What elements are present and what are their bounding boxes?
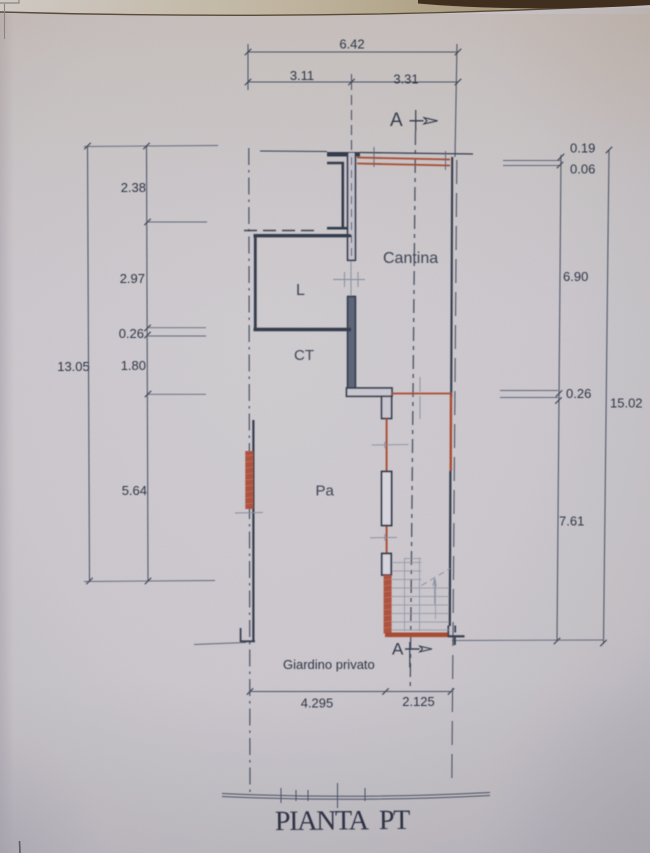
svg-text:6.42: 6.42: [339, 37, 364, 52]
svg-text:Pa: Pa: [316, 483, 335, 500]
svg-text:Giardino privato: Giardino privato: [283, 657, 375, 672]
svg-text:1.80: 1.80: [121, 358, 146, 373]
svg-text:CT: CT: [294, 347, 314, 364]
svg-text:2.38: 2.38: [121, 180, 146, 195]
svg-text:Cantina: Cantina: [383, 250, 438, 267]
svg-text:2.125: 2.125: [402, 694, 435, 709]
svg-text:A: A: [392, 640, 404, 659]
svg-text:4.295: 4.295: [301, 696, 334, 711]
svg-text:PIANTA PT: PIANTA PT: [275, 805, 411, 837]
svg-text:0.26: 0.26: [566, 386, 591, 401]
svg-text:3.11: 3.11: [290, 68, 314, 83]
svg-text:2.97: 2.97: [120, 271, 145, 286]
svg-text:5.64: 5.64: [122, 483, 147, 498]
svg-text:3.31: 3.31: [393, 72, 418, 87]
svg-text:6.90: 6.90: [563, 269, 588, 284]
svg-text:0.06: 0.06: [570, 162, 595, 177]
svg-text:13.05: 13.05: [57, 359, 90, 374]
svg-text:0.26: 0.26: [119, 326, 144, 341]
svg-text:A: A: [390, 110, 403, 131]
svg-text:0.19: 0.19: [570, 141, 595, 156]
svg-text:7.61: 7.61: [559, 514, 584, 529]
svg-text:15.02: 15.02: [610, 396, 643, 411]
svg-text:L: L: [296, 282, 305, 299]
